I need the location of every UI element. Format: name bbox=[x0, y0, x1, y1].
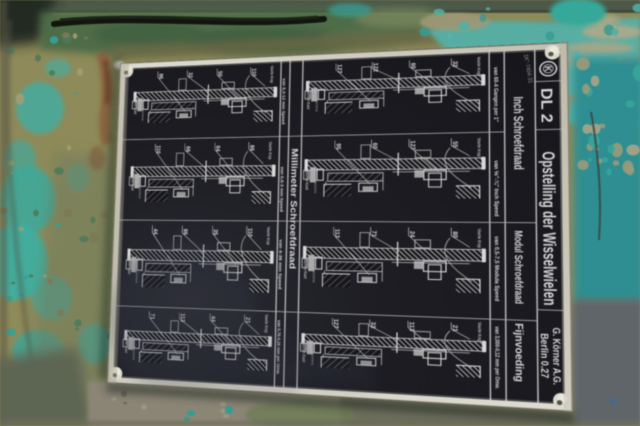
svg-text:G. Körner A.G.: G. Körner A.G. bbox=[550, 327, 563, 385]
svg-text:113: 113 bbox=[333, 229, 339, 238]
svg-text:110: 110 bbox=[250, 68, 256, 77]
svg-text:32: 32 bbox=[187, 72, 193, 78]
svg-text:86: 86 bbox=[157, 73, 163, 79]
svg-text:127: 127 bbox=[332, 319, 339, 329]
svg-text:Inch Schroefdraad: Inch Schroefdraad bbox=[510, 96, 525, 170]
svg-text:van 4-36 mm Speed: van 4-36 mm Speed bbox=[277, 239, 283, 289]
svg-text:Vaste Kop: Vaste Kop bbox=[477, 322, 483, 343]
svg-text:86: 86 bbox=[181, 229, 187, 235]
svg-text:Fijnvoeding: Fijnvoeding bbox=[512, 323, 526, 382]
svg-text:Norton Kast: Norton Kast bbox=[303, 259, 309, 279]
svg-text:Norton Kast: Norton Kast bbox=[133, 96, 138, 114]
svg-text:86: 86 bbox=[248, 145, 254, 151]
svg-text:Tusschenw.: Tusschenw. bbox=[313, 179, 317, 194]
svg-text:Norton Kast: Norton Kast bbox=[304, 171, 309, 191]
svg-text:64: 64 bbox=[214, 146, 220, 153]
svg-text:24: 24 bbox=[408, 231, 415, 238]
svg-text:Tusschenw.: Tusschenw. bbox=[141, 108, 145, 122]
svg-text:60: 60 bbox=[409, 63, 416, 69]
svg-text:50: 50 bbox=[216, 71, 222, 77]
svg-text:Norton Kast: Norton Kast bbox=[130, 172, 135, 191]
svg-text:110: 110 bbox=[246, 228, 252, 237]
svg-text:Opstelling der Wisselwielen: Opstelling der Wisselwielen bbox=[538, 151, 559, 306]
svg-text:van 0,5-3 mm Speed: van 0,5-3 mm Speed bbox=[279, 167, 285, 213]
svg-text:Norton Kast: Norton Kast bbox=[306, 90, 311, 110]
svg-text:71: 71 bbox=[370, 231, 377, 237]
svg-text:Vaste Kop: Vaste Kop bbox=[476, 138, 482, 158]
svg-text:95: 95 bbox=[334, 143, 340, 149]
svg-text:110: 110 bbox=[155, 145, 161, 153]
svg-text:Tusschenw.: Tusschenw. bbox=[138, 185, 142, 199]
svg-text:44: 44 bbox=[152, 229, 158, 236]
svg-text:Modul Schroefdraad: Modul Schroefdraad bbox=[511, 230, 525, 304]
svg-text:32: 32 bbox=[369, 322, 376, 329]
svg-text:Vaste Kop: Vaste Kop bbox=[268, 142, 273, 160]
svg-text:Vaste Kop: Vaste Kop bbox=[269, 65, 274, 83]
svg-text:122: 122 bbox=[372, 63, 378, 72]
svg-text:Vaste Kop: Vaste Kop bbox=[476, 56, 482, 75]
svg-text:K: K bbox=[542, 66, 553, 72]
svg-text:55: 55 bbox=[451, 141, 458, 147]
svg-text:Tusschenw.: Tusschenw. bbox=[315, 98, 319, 113]
svg-text:66: 66 bbox=[184, 146, 190, 152]
svg-text:Berlin 0.27: Berlin 0.27 bbox=[538, 333, 551, 379]
svg-text:Vaste Kop: Vaste Kop bbox=[477, 228, 483, 248]
svg-text:127: 127 bbox=[335, 64, 341, 73]
svg-text:Tusschenw.: Tusschenw. bbox=[312, 268, 316, 283]
svg-text:35: 35 bbox=[212, 229, 218, 235]
svg-text:DL 2: DL 2 bbox=[536, 88, 555, 123]
svg-text:80: 80 bbox=[451, 231, 458, 238]
svg-text:60: 60 bbox=[371, 143, 377, 149]
svg-text:21: 21 bbox=[451, 325, 458, 332]
svg-text:32: 32 bbox=[451, 61, 458, 67]
svg-text:van 5,3-12 mm Speed: van 5,3-12 mm Speed bbox=[281, 78, 287, 125]
svg-text:113: 113 bbox=[407, 322, 414, 332]
svg-text:Vaste Kop: Vaste Kop bbox=[266, 227, 271, 246]
svg-text:127: 127 bbox=[408, 140, 415, 149]
